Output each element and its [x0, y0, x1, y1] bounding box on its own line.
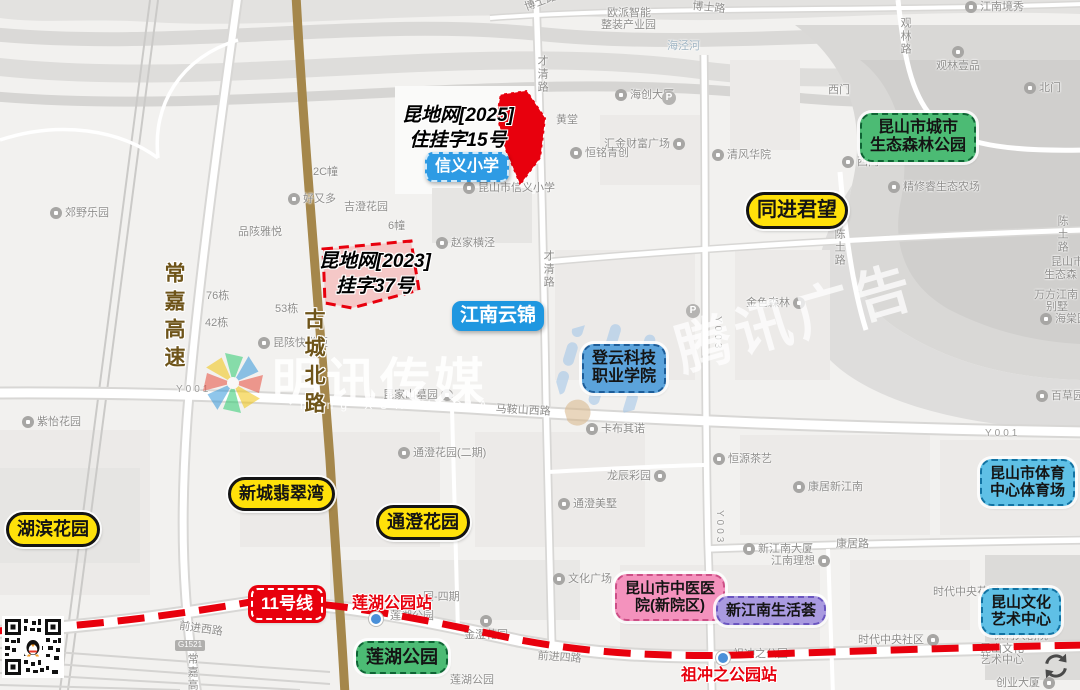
landmark-badge-line: 同进君望 [757, 199, 837, 222]
map-label: G1521 [175, 640, 205, 651]
map-label-text: 精修睿生态农场 [903, 181, 980, 193]
landmark-badge-line: 昆山市体育 [990, 465, 1065, 482]
map-label: 昆家山墓园 [383, 389, 453, 401]
map-label-text: 龙辰彩园 [607, 470, 651, 482]
map-label-text: 才清路 [542, 250, 554, 289]
map-label-text: Y003 [714, 510, 725, 545]
map-label-text: 吉澄花园 [344, 201, 388, 213]
poi-marker-icon [558, 498, 570, 510]
poi-marker-icon [586, 423, 598, 435]
poi-marker-icon [398, 447, 410, 459]
map-label: 陈土路 [1056, 215, 1068, 254]
landmark-badge: 莲湖公园 [356, 641, 448, 674]
map-label-text: 42栋 [205, 317, 228, 329]
map-label-text: 创业大厦 [996, 677, 1040, 689]
map-label-text: 53栋 [275, 303, 298, 315]
landmark-badge-line: 新城翡翠湾 [239, 484, 324, 504]
poi-marker-icon [50, 207, 62, 219]
map-label: 才清路 [536, 55, 548, 94]
landmark-badge: 江南云锦 [452, 301, 544, 331]
map-label: 观林壹品 [936, 60, 980, 72]
map-label: 吉澄花园 [344, 201, 388, 213]
map-label-text: 北门 [1039, 82, 1061, 94]
map-label-text: 紫怡花园 [37, 416, 81, 428]
parcel-2025-label-line2: 住挂字15号 [368, 129, 548, 154]
metro-station-label: 莲湖公园站 [352, 589, 432, 613]
poi-marker-icon [570, 147, 582, 159]
map-label: 常嘉高速 [186, 653, 198, 690]
map-label: 76栋 [206, 290, 229, 302]
map-label: 北门 [1024, 82, 1061, 94]
landmark-badge: 登云科技职业学院 [582, 344, 666, 393]
map-label: 恒源茶艺 [713, 453, 772, 465]
landmark-badge: 昆山市中医医院(新院区) [615, 574, 725, 621]
landmark-badge-line: 艺术中心 [991, 611, 1051, 628]
map-label: 时代中央社区 [858, 634, 939, 646]
map-label: 祖冲之公园 [733, 648, 788, 660]
map-label: 赵家横泾 [436, 237, 495, 249]
poi-marker-icon [965, 1, 977, 13]
map-label-text: 清风华院 [727, 149, 771, 161]
map-label: 生态森 [1044, 269, 1077, 281]
landmark-badge: 昆山文化艺术中心 [981, 588, 1061, 635]
parcel-2025-label: 昆地网[2025] 住挂字15号 [368, 104, 548, 153]
map-label-text: 通澄花园(二期) [413, 447, 486, 459]
map-label-text: Y001 [985, 428, 1020, 439]
landmark-badge-line: 11号线 [261, 594, 313, 614]
map-label-text: 新江南大厦 [758, 543, 813, 555]
map-label: 清风华院 [712, 149, 771, 161]
map-label-text: 百草园 [1051, 390, 1080, 402]
landmark-badge-line: 昆山市中医医 [625, 580, 715, 597]
parking-icon: P [686, 304, 700, 318]
map-label-text: 2C幢 [313, 166, 338, 178]
poi-marker-icon [615, 89, 627, 101]
landmark-badge-line: 院(新院区) [625, 597, 715, 614]
landmark-badge-line: 莲湖公园 [366, 647, 438, 668]
poi-marker-icon [713, 453, 725, 465]
map-label-text: 莲湖公园 [450, 674, 494, 686]
map-label-text: 常嘉高速 [186, 653, 198, 690]
landmark-badge-line: 通澄花园 [387, 512, 459, 533]
poi-marker-icon [22, 416, 34, 428]
parking-icon: P [662, 91, 676, 105]
map-label-text: 好又多 [303, 193, 336, 205]
map-label-text: 金澄花园 [464, 629, 508, 641]
poi-marker-icon [436, 237, 448, 249]
map-label: 百草园 [1036, 390, 1080, 402]
map-label-text: 6幢 [388, 220, 405, 232]
map-label-text: 时代中央社区 [858, 634, 924, 646]
parcel-2023-label-line2: 挂字37号 [295, 275, 455, 300]
map-label: 新江南大厦 [743, 543, 813, 555]
map-label: Y003 [712, 316, 723, 351]
map-label: 观林路 [899, 17, 911, 56]
map-label-text: 生态森 [1044, 269, 1077, 281]
map-label-text: 祖冲之公园 [733, 648, 788, 660]
map-label: 文化广场 [553, 573, 612, 585]
map-label-text: 赵家横泾 [451, 237, 495, 249]
map-label: Y001 [985, 428, 1020, 439]
map-label-text: 昆家山墓园 [383, 389, 438, 401]
map-label: 康居路 [836, 538, 869, 550]
map-label-text: 整装产业园 [601, 19, 656, 31]
landmark-badge: 新江南生活荟 [716, 596, 826, 625]
map-canvas: 明讯传媒 ming XUN MEDIA 腾讯广告 [0, 0, 1080, 690]
landmark-badge: 湖滨花园 [6, 512, 100, 547]
map-label: 42栋 [205, 317, 228, 329]
map-label-text: 恒铭青创 [585, 147, 629, 159]
map-label: 江南境秀 [965, 1, 1024, 13]
map-label: 恒铭青创 [570, 147, 629, 159]
landmark-badge-line: 职业学院 [592, 368, 656, 386]
map-label-text: Y001 [176, 384, 211, 395]
poi-marker-icon [654, 470, 666, 482]
map-label: 艺术中心 [980, 654, 1024, 666]
map-label-text: 昆山市信义小学 [478, 182, 555, 194]
map-label: 才清路 [542, 250, 554, 289]
landmark-badge-line: 江南云锦 [460, 305, 536, 327]
poi-marker-icon [673, 138, 685, 150]
landmark-badge-line: 登云科技 [592, 350, 656, 368]
landmark-badge: 昆山市城市生态森林公园 [860, 113, 976, 162]
qq-penguin-icon [24, 638, 42, 657]
poi-marker-icon [463, 182, 475, 194]
map-label: 莲湖公园 [450, 674, 494, 686]
map-label: 精修睿生态农场 [888, 181, 980, 193]
landmark-badge: 新城翡翠湾 [228, 477, 335, 511]
metro-station-dot [369, 612, 383, 626]
map-label-text: 康居路 [836, 538, 869, 550]
map-label-text: 才清路 [536, 55, 548, 94]
poi-marker-icon [712, 149, 724, 161]
map-label: 万方江南 [1034, 289, 1078, 301]
map-label-text: 陈土路 [1056, 215, 1068, 254]
map-label: 西门 [828, 84, 850, 96]
map-label-text: G1521 [178, 641, 202, 650]
map-label: 龙辰彩园 [607, 470, 666, 482]
poi-marker-icon [818, 555, 830, 567]
poi-marker-icon [1040, 313, 1052, 325]
map-label: 6幢 [388, 220, 405, 232]
map-label: 2C幢 [313, 166, 338, 178]
landmark-badge: 昆山市体育中心体育场 [980, 459, 1075, 506]
poi-marker-icon [441, 389, 453, 401]
map-label-text: 别墅 [1046, 301, 1068, 313]
map-label: 通澄花园(二期) [398, 447, 486, 459]
map-label-text: 江南境秀 [980, 1, 1024, 13]
map-label: 品陔雅悦 [238, 226, 282, 238]
map-label-text: 金色森林 [746, 297, 790, 309]
poi-marker-icon [842, 156, 854, 168]
poi-marker-icon [927, 634, 939, 646]
poi-marker-icon [553, 573, 565, 585]
map-label-text: 观林壹品 [936, 60, 980, 72]
map-label: 卡布其诺 [586, 423, 645, 435]
parcel-2023-label: 昆地网[2023] 挂字37号 [295, 250, 455, 299]
map-label-text: 昆山市 [1051, 256, 1080, 268]
poi-marker-icon [1024, 82, 1036, 94]
refresh-icon[interactable] [1042, 652, 1070, 680]
map-label: 康居新江南 [793, 481, 863, 493]
landmark-badge-line: 昆山文化 [991, 594, 1051, 611]
poi-marker-icon [793, 481, 805, 493]
map-label: 郊野乐园 [50, 207, 109, 219]
map-label-text: 西门 [828, 84, 850, 96]
map-label: 通澄美墅 [558, 498, 617, 510]
map-label-text: 76栋 [206, 290, 229, 302]
parcel-2023-label-line1: 昆地网[2023] [295, 250, 455, 275]
landmark-badge-line: 昆山市城市 [870, 119, 966, 137]
map-label: 昆山市信义小学 [463, 182, 555, 194]
poi-marker-icon [1036, 390, 1048, 402]
map-label: 整装产业园 [601, 19, 656, 31]
map-label: 紫怡花园 [22, 416, 81, 428]
landmark-badge-line: 生态森林公园 [870, 137, 966, 155]
map-label-text: 江南理想 [771, 555, 815, 567]
map-label-text: 观林路 [899, 17, 911, 56]
poi-marker-icon [888, 181, 900, 193]
map-label-text: 海泾河 [667, 40, 700, 52]
road-name-label: 古城北路 [303, 308, 324, 420]
qq-qr-code [2, 616, 64, 678]
poi-marker-icon [793, 297, 805, 309]
landmark-badge-line: 湖滨花园 [17, 519, 89, 540]
map-label: 昆山市 [1051, 256, 1080, 268]
map-label: 海棠园 [1040, 313, 1080, 325]
map-label-text: 黄堂 [556, 114, 578, 126]
landmark-badge: 同进君望 [746, 192, 848, 229]
map-label-text: 卡布其诺 [601, 423, 645, 435]
landmark-badge: 11号线 [251, 588, 323, 620]
map-label: 金色森林 [746, 297, 805, 309]
map-label: 金澄花园 [464, 629, 508, 641]
map-label: 黄堂 [556, 114, 578, 126]
map-label-text: 康居新江南 [808, 481, 863, 493]
map-label-text: 文化广场 [568, 573, 612, 585]
landmark-badge-line: 中心体育场 [990, 482, 1065, 499]
map-label: Y003 [714, 510, 725, 545]
map-label-text: Y003 [712, 316, 723, 351]
map-label-text: 通澄美墅 [573, 498, 617, 510]
poi-marker-icon [743, 543, 755, 555]
map-label-text: 恒源茶艺 [728, 453, 772, 465]
metro-station-label: 祖冲之公园站 [681, 661, 777, 685]
poi-marker-icon [258, 337, 270, 349]
map-label-text: 品陔雅悦 [238, 226, 282, 238]
poi-marker-icon [952, 46, 964, 58]
landmark-badge: 信义小学 [425, 152, 509, 182]
map-label: 欧派智能 [607, 7, 651, 19]
poi-marker-icon [480, 615, 492, 627]
parcel-2025-label-line1: 昆地网[2025] [368, 104, 548, 129]
map-label: 别墅 [1046, 301, 1068, 313]
map-label-text: 万方江南 [1034, 289, 1078, 301]
landmark-badge-line: 信义小学 [435, 158, 499, 176]
road-name-label: 常嘉高速 [163, 262, 184, 374]
landmark-badge: 通澄花园 [376, 505, 470, 540]
map-label-text: 海棠园 [1055, 313, 1080, 325]
map-label-text: 郊野乐园 [65, 207, 109, 219]
map-label: 江南理想 [771, 555, 830, 567]
map-label: 海泾河 [667, 40, 700, 52]
map-label-text: 欧派智能 [607, 7, 651, 19]
map-label: Y001 [176, 384, 211, 395]
map-label-text: 艺术中心 [980, 654, 1024, 666]
map-label-text: 陈土路 [833, 228, 845, 267]
poi-marker-icon [288, 193, 300, 205]
landmark-badge-line: 新江南生活荟 [726, 602, 816, 619]
map-label: 好又多 [288, 193, 336, 205]
map-label: 陈土路 [833, 228, 845, 267]
map-label: 53栋 [275, 303, 298, 315]
